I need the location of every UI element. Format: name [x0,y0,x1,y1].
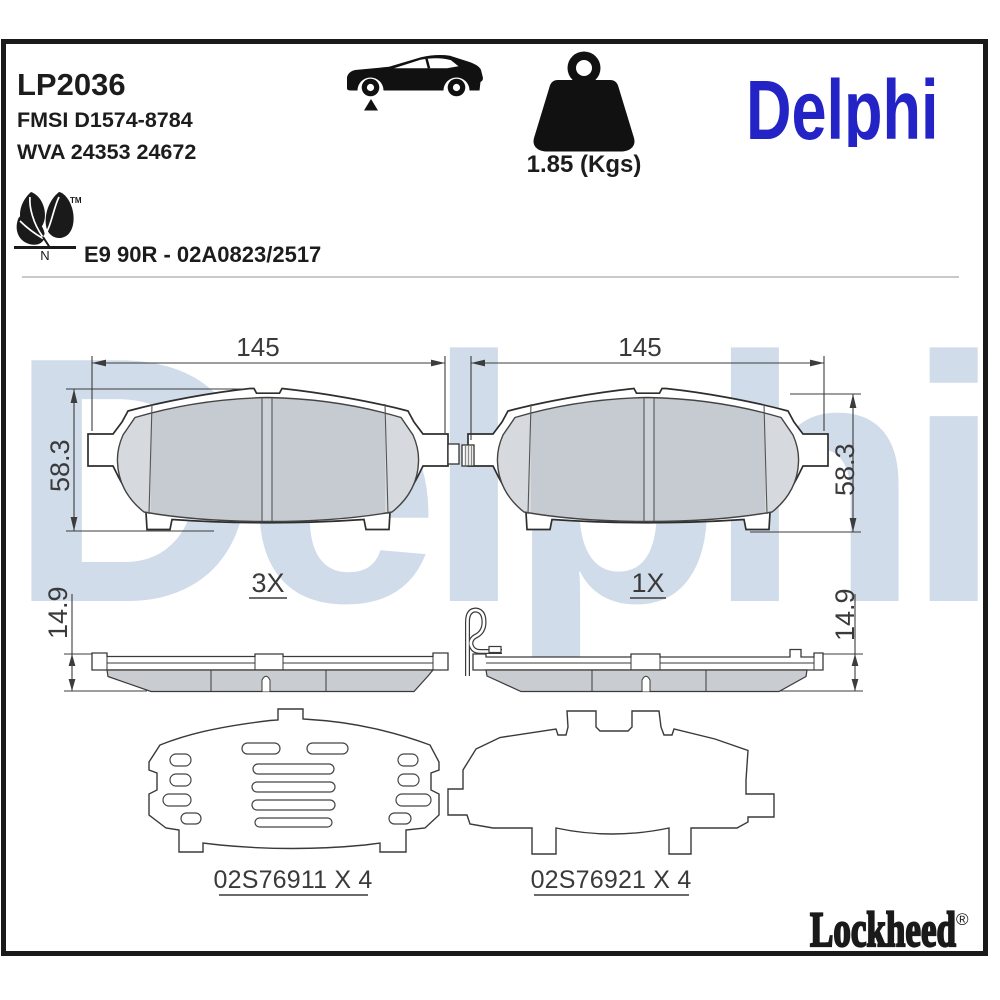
svg-text:®: ® [956,910,969,929]
svg-text:Lockheed: Lockheed [810,901,956,957]
svg-text:58.3: 58.3 [830,443,860,496]
svg-text:TM: TM [70,196,82,205]
svg-text:02S76911 X 4: 02S76911 X 4 [213,866,372,894]
svg-text:N: N [40,248,49,263]
svg-text:1X: 1X [631,568,664,598]
svg-text:FMSI D1574-8784: FMSI D1574-8784 [17,108,193,132]
svg-text:02S76921 X 4: 02S76921 X 4 [531,866,692,894]
svg-text:14.9: 14.9 [830,588,860,641]
svg-text:1.85 (Kgs): 1.85 (Kgs) [527,151,642,178]
svg-text:LP2036: LP2036 [17,67,126,102]
svg-text:Delphi: Delphi [746,63,938,157]
svg-text:WVA 24353 24672: WVA 24353 24672 [17,140,196,164]
svg-text:14.9: 14.9 [43,586,73,639]
svg-text:58.3: 58.3 [45,439,75,492]
svg-text:3X: 3X [251,568,284,598]
svg-text:145: 145 [618,332,661,362]
svg-text:145: 145 [236,332,279,362]
svg-text:E9 90R - 02A0823/2517: E9 90R - 02A0823/2517 [84,242,321,267]
